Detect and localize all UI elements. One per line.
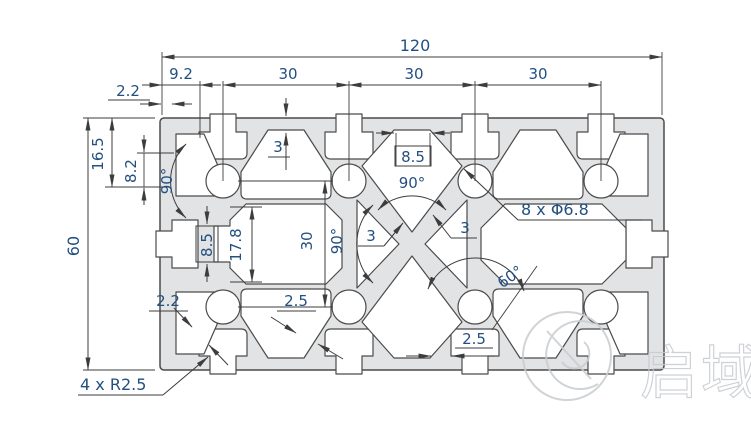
dim-text-bottom-wall: 2.2 xyxy=(156,292,180,310)
dim-edge-offset: 9.2 xyxy=(142,65,221,85)
dim-text-corner-fillet: 4 x R2.5 xyxy=(80,375,146,394)
dim-total-height: 60 xyxy=(64,118,155,370)
dim-text-slot-mouth-top: 8.5 xyxy=(401,148,425,166)
dim-text-bottom-web: 2.5 xyxy=(462,330,486,348)
dim-text-pitch-c: 30 xyxy=(528,65,547,83)
dim-text-total-width: 120 xyxy=(400,36,431,55)
dim-text-pitch-b: 30 xyxy=(404,65,423,83)
dim-text-x-wall-a: 3 xyxy=(366,227,376,245)
hole xyxy=(458,290,492,324)
drawing-canvas: 120 30 30 30 9.2 2.2 xyxy=(0,0,751,428)
dim-text-inner-groove-mouth: 8.5 xyxy=(198,233,216,257)
dim-text-face-wall: 3 xyxy=(273,138,283,156)
dim-text-inner-groove-depth: 17.8 xyxy=(227,228,245,261)
dim-text-top-wall: 2.2 xyxy=(116,82,140,100)
hole xyxy=(332,290,366,324)
dim-text-slot-angle-left: 90° xyxy=(158,168,176,195)
dim-text-edge-offset: 9.2 xyxy=(169,65,193,83)
dim-text-side-groove-span: 16.5 xyxy=(89,137,107,170)
dim-text-pitch-a: 30 xyxy=(278,65,297,83)
hole xyxy=(206,290,240,324)
dim-text-side-groove-mouth: 8.2 xyxy=(122,159,140,183)
dim-text-hole-row-spacing: 30 xyxy=(298,231,316,250)
extrusion-profile-drawing: 120 30 30 30 9.2 2.2 xyxy=(0,0,751,428)
dim-text-x-angle-side: 90° xyxy=(328,228,346,255)
watermark-text: 启域 xyxy=(640,339,751,407)
dim-text-holes-callout: 8 x Φ6.8 xyxy=(521,200,589,219)
dim-text-diag-wall: 2.5 xyxy=(284,292,308,310)
dim-text-total-height: 60 xyxy=(64,236,83,256)
dim-text-x-wall-b: 3 xyxy=(460,219,470,237)
dim-text-x-angle-top: 90° xyxy=(399,174,426,192)
